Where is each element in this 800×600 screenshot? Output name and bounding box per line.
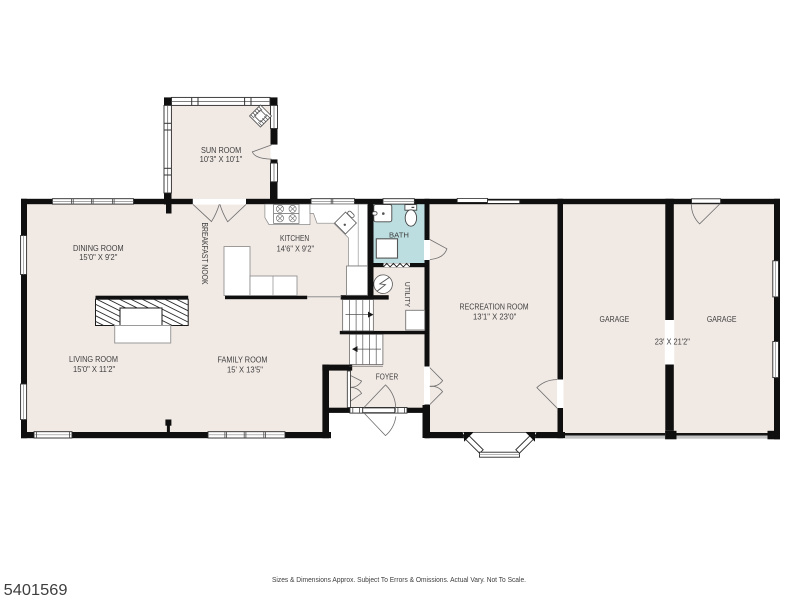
svg-text:SUN ROOM: SUN ROOM bbox=[201, 146, 241, 155]
svg-text:15'0" X 11'2": 15'0" X 11'2" bbox=[73, 365, 115, 374]
svg-text:5401569: 5401569 bbox=[4, 582, 68, 599]
svg-text:23' X 21'2": 23' X 21'2" bbox=[655, 338, 690, 347]
svg-text:GARAGE: GARAGE bbox=[707, 315, 737, 324]
svg-text:14'6" X 9'2": 14'6" X 9'2" bbox=[277, 244, 315, 253]
svg-text:15'0" X 9'2": 15'0" X 9'2" bbox=[79, 253, 117, 262]
svg-text:FOYER: FOYER bbox=[376, 373, 398, 382]
svg-text:BREAKFAST NOOK: BREAKFAST NOOK bbox=[200, 223, 209, 286]
svg-text:FAMILY ROOM: FAMILY ROOM bbox=[218, 356, 268, 365]
svg-text:13'1" X 23'0": 13'1" X 23'0" bbox=[473, 313, 516, 322]
svg-text:15' X 13'5": 15' X 13'5" bbox=[227, 366, 263, 375]
svg-text:RECREATION ROOM: RECREATION ROOM bbox=[460, 303, 529, 312]
svg-text:KITCHEN: KITCHEN bbox=[280, 234, 309, 243]
svg-text:10'3" X 10'1": 10'3" X 10'1" bbox=[200, 155, 243, 164]
svg-text:Sizes & Dimensions Approx. Sub: Sizes & Dimensions Approx. Subject To Er… bbox=[272, 577, 526, 584]
svg-text:BATH: BATH bbox=[389, 230, 409, 239]
svg-text:GARAGE: GARAGE bbox=[600, 315, 630, 324]
svg-text:LIVING ROOM: LIVING ROOM bbox=[69, 355, 118, 364]
svg-text:DINING ROOM: DINING ROOM bbox=[73, 244, 124, 253]
svg-text:UTILITY: UTILITY bbox=[403, 282, 412, 307]
